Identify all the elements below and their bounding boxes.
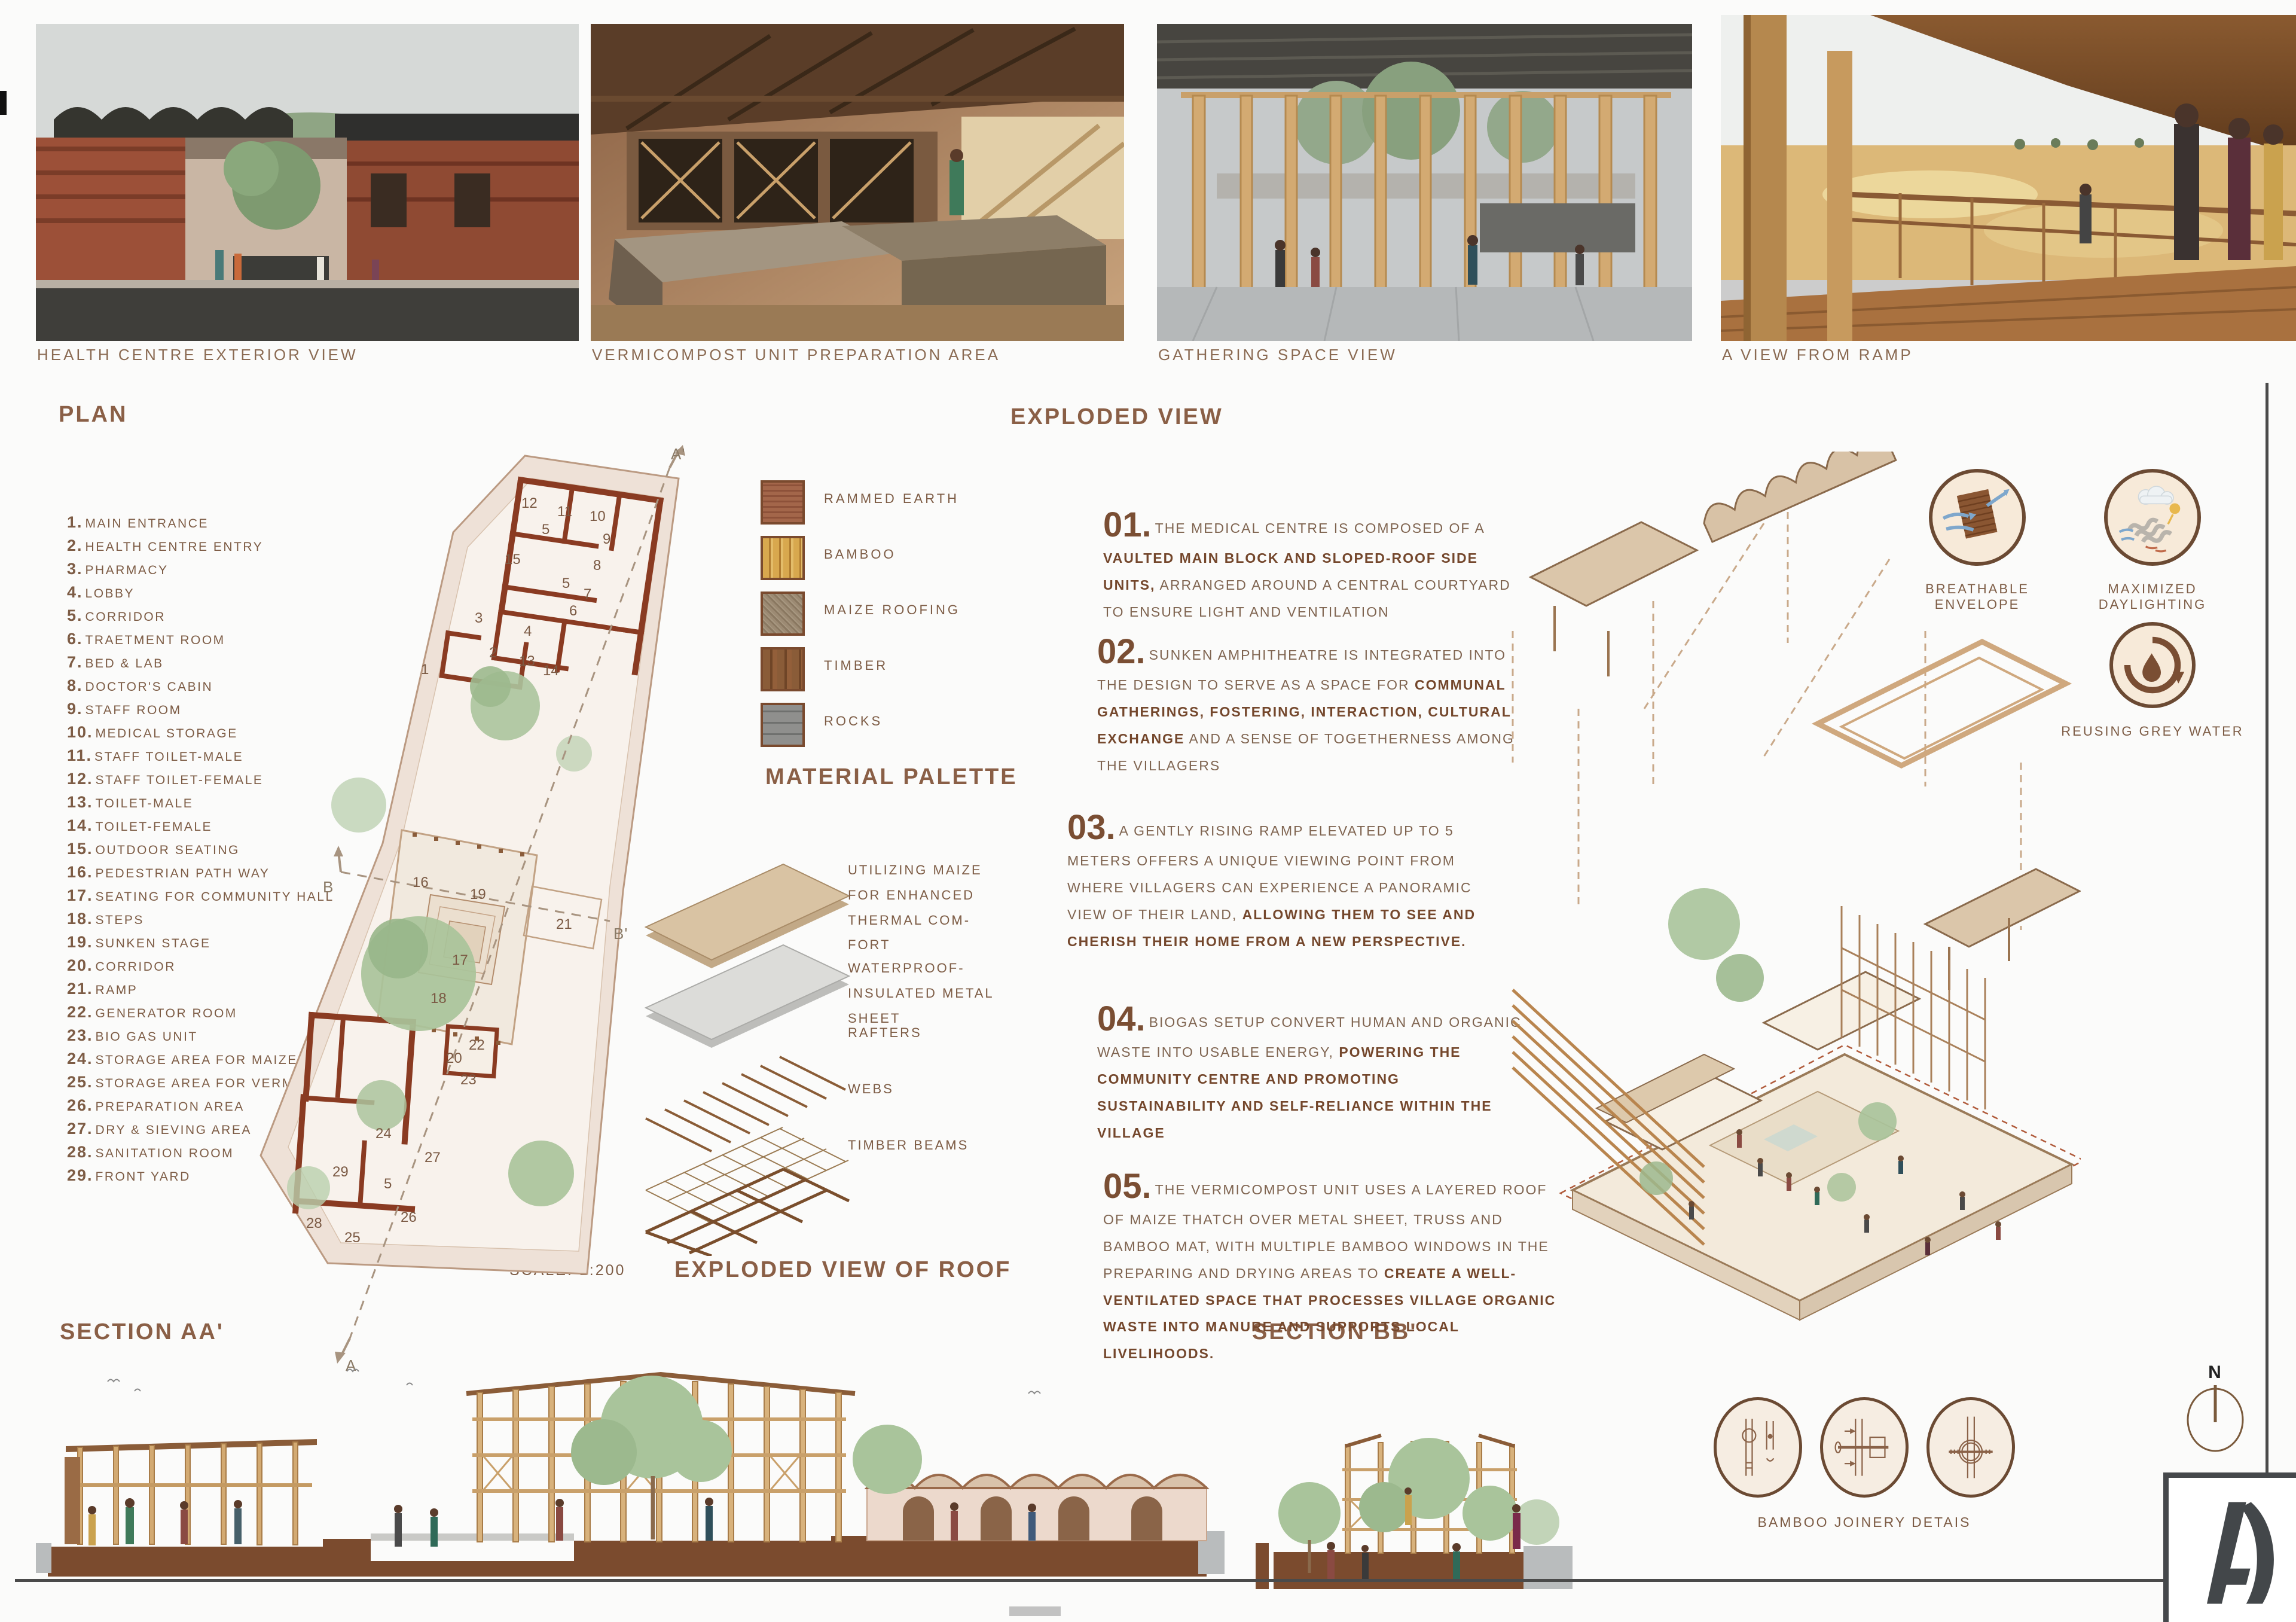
legend-label: STAFF TOILET-MALE [94, 750, 243, 764]
note-text: BIOGAS SETUP CONVERT HUMAN AND ORGANIC W… [1097, 1014, 1522, 1141]
feature-reusing-grey-water: REUSING GREY WATER [2057, 622, 2248, 739]
photo-health-centre-exterior [36, 24, 579, 341]
legend-number: 15. [67, 840, 93, 858]
room-number: 5 [384, 1176, 392, 1193]
material-item: BAMBOO [761, 536, 960, 578]
legend-number: 13. [67, 793, 93, 812]
room-number: 11 [557, 504, 572, 520]
legend-label: LOBBY [86, 587, 135, 601]
room-number: 6 [569, 603, 577, 620]
note-number: 03. [1067, 808, 1116, 847]
plan-title: PLAN [59, 402, 127, 428]
legend-number: 5. [67, 606, 83, 625]
legend-number: 28. [67, 1143, 93, 1161]
material-item: ROCKS [761, 703, 960, 745]
note-text: SUNKEN AMPHITHEATRE IS INTEGRATED INTO T… [1097, 647, 1515, 773]
room-number: 21 [556, 916, 572, 933]
legend-number: 19. [67, 933, 93, 952]
legend-label: PREPARATION AREA [96, 1100, 245, 1114]
legend-label: HEALTH CENTRE ENTRY [86, 540, 264, 554]
legend-label: PEDESTRIAN PATH WAY [96, 867, 270, 881]
legend-number: 21. [67, 980, 93, 998]
joinery-detail-1-icon [1714, 1397, 1802, 1498]
vermicompost-unit-render [591, 24, 1124, 341]
legend-number: 1. [67, 513, 83, 532]
legend-label: CORRIDOR [96, 960, 176, 974]
legend-number: 4. [67, 583, 83, 602]
legend-number: 6. [67, 630, 83, 648]
legend-number: 25. [67, 1073, 93, 1092]
material-item: TIMBER [761, 647, 960, 689]
design-note: 01.THE MEDICAL CENTRE IS COMPOSED OF A V… [1103, 505, 1522, 626]
room-number: 1 [421, 661, 429, 678]
room-number: 9 [603, 531, 610, 548]
roof-exploded-labels: UTILIZING MAIZE FOR ENHANCED THERMAL COM… [837, 843, 1052, 1226]
room-number: 17 [452, 952, 468, 969]
room-number: 7 [584, 586, 591, 603]
material-swatch [761, 703, 805, 747]
legend-label: MAIN ENTRANCE [86, 517, 209, 531]
section-aa-svg [36, 1356, 1232, 1596]
sheet-bottom-rule [15, 1579, 2163, 1582]
note-number: 05. [1103, 1167, 1152, 1206]
material-label: TIMBER [824, 658, 888, 673]
legend-number: 27. [67, 1120, 93, 1138]
material-label: MAIZE ROOFING [824, 602, 960, 618]
legend-number: 10. [67, 723, 93, 742]
legend-number: 22. [67, 1003, 93, 1022]
room-number: 4 [524, 623, 532, 640]
legend-label: OUTDOOR SEATING [96, 843, 240, 858]
legend-number: 18. [67, 910, 93, 928]
feature-label-grey-water: REUSING GREY WATER [2057, 724, 2248, 739]
material-swatch [761, 592, 805, 636]
room-number: 3 [475, 610, 483, 627]
room-number: 5 [562, 575, 570, 592]
material-label: ROCKS [824, 714, 883, 729]
studio-logo-a-glyph [2187, 1489, 2288, 1617]
material-item: RAMMED EARTH [761, 480, 960, 522]
note-number: 01. [1103, 505, 1152, 544]
room-number: 24 [375, 1126, 392, 1142]
material-item: MAIZE ROOFING [761, 592, 960, 633]
note-number: 04. [1097, 999, 1146, 1038]
roof-exploded-diagram [610, 837, 861, 1259]
section-bb-svg [1256, 1423, 1602, 1603]
legend-number: 3. [67, 560, 83, 578]
roof-layer-label: WEBS [848, 1077, 1027, 1102]
room-number: 26 [401, 1209, 417, 1226]
legend-label: FRONT YARD [96, 1170, 191, 1184]
photo-view-from-ramp [1721, 15, 2296, 341]
legend-number: 11. [67, 746, 92, 765]
exploded-roof-title: EXPLODED VIEW OF ROOF [674, 1257, 1011, 1283]
room-number: 29 [332, 1164, 349, 1181]
caption-view-from-ramp: A VIEW FROM RAMP [1722, 346, 1913, 364]
material-palette: RAMMED EARTH BAMBOO MAIZE ROOFING TIMBER… [761, 480, 960, 758]
maximized-daylighting-icon [2104, 469, 2201, 566]
north-label: N [2179, 1362, 2251, 1383]
room-number: 23 [460, 1072, 477, 1089]
legend-label: GENERATOR ROOM [96, 1007, 237, 1021]
legend-label: SANITATION ROOM [96, 1147, 234, 1161]
feature-label-breathable: BREATHABLE ENVELOPE [1882, 581, 2073, 612]
caption-gathering-space: GATHERING SPACE VIEW [1158, 346, 1397, 364]
compass-icon [2182, 1383, 2248, 1455]
section-aa-title: SECTION AA' [60, 1319, 224, 1345]
room-number: 27 [425, 1150, 441, 1166]
note-text: THE VERMICOMPOST UNIT USES A LAYERED ROO… [1103, 1182, 1556, 1361]
health-centre-exterior-render [36, 24, 579, 341]
photo-gathering-space [1157, 24, 1692, 341]
legend-number: 23. [67, 1026, 93, 1045]
legend-label: DOCTOR'S CABIN [86, 680, 213, 694]
legend-number: 14. [67, 816, 93, 835]
edge-tick [0, 91, 7, 115]
design-note: 04.BIOGAS SETUP CONVERT HUMAN AND ORGANI… [1097, 999, 1528, 1146]
section-marker-b-left: B [323, 878, 334, 897]
breathable-envelope-icon [1929, 469, 2026, 566]
legend-label: MEDICAL STORAGE [96, 727, 238, 741]
feature-breathable-envelope: BREATHABLE ENVELOPE [1882, 469, 2073, 612]
roof-layer-label: TIMBER BEAMS [848, 1133, 1039, 1158]
legend-number: 2. [67, 536, 83, 555]
feature-maximized-daylighting: MAXIMIZED DAYLIGHTING [2057, 469, 2248, 612]
design-note: 02.SUNKEN AMPHITHEATRE IS INTEGRATED INT… [1097, 632, 1516, 779]
joinery-detail-2-icon [1820, 1397, 1909, 1498]
north-compass: N [2179, 1362, 2251, 1458]
legend-label: TRAETMENT ROOM [86, 633, 225, 648]
legend-number: 9. [67, 700, 83, 718]
note-text: THE MEDICAL CENTRE IS COMPOSED OF A VAUL… [1103, 520, 1511, 620]
legend-label: STAFF TOILET-FEMALE [96, 773, 264, 788]
photo-vermicompost-unit [591, 24, 1124, 341]
view-from-ramp-render [1721, 15, 2296, 341]
material-swatch [761, 480, 805, 525]
legend-number: 16. [67, 863, 93, 882]
legend-label: DRY & SIEVING AREA [96, 1123, 252, 1138]
design-note: 05.THE VERMICOMPOST UNIT USES A LAYERED … [1103, 1166, 1570, 1367]
room-number: 28 [306, 1215, 322, 1232]
legend-label: PHARMACY [86, 563, 169, 578]
legend-number: 7. [67, 653, 83, 672]
gathering-space-render [1157, 24, 1692, 341]
room-number: 16 [413, 874, 429, 891]
material-palette-title: MATERIAL PALETTE [765, 764, 1018, 790]
note-number: 02. [1097, 632, 1146, 671]
room-number: 15 [505, 551, 521, 568]
studio-logo [2163, 1472, 2296, 1622]
roof-layer-label: RAFTERS [848, 1020, 1027, 1045]
legend-label: STEPS [96, 913, 144, 928]
section-marker-a-top: A' [671, 445, 685, 464]
legend-label: BED & LAB [86, 657, 164, 671]
legend-label: RAMP [96, 983, 138, 998]
legend-label: STAFF ROOM [86, 703, 182, 718]
room-number: 22 [469, 1037, 485, 1054]
legend-number: 20. [67, 956, 93, 975]
exploded-view-title: EXPLODED VIEW [1010, 404, 1223, 430]
legend-label: TOILET-MALE [96, 797, 194, 811]
room-number: 12 [521, 495, 538, 512]
roof-layer-label: WATERPROOF-INSULATED METAL SHEET [848, 956, 1045, 1030]
material-swatch [761, 536, 805, 580]
legend-label: SUNKEN STAGE [96, 937, 211, 951]
room-number: 10 [590, 508, 606, 525]
presentation-sheet: SHEET NO : 02 archi_QJ0ToAzvpbEpx7 [0, 0, 2296, 1622]
room-number: 20 [446, 1050, 462, 1067]
material-label: BAMBOO [824, 547, 896, 562]
legend-number: 29. [67, 1166, 93, 1185]
legend-number: 17. [67, 886, 93, 905]
legend-label: CORRIDOR [86, 610, 166, 624]
room-number: 14 [543, 663, 559, 679]
roof-exploded-svg [610, 837, 861, 1256]
legend-label: TOILET-FEMALE [96, 820, 213, 834]
room-number: 8 [593, 557, 601, 574]
joinery-detail-3-icon [1926, 1397, 2015, 1498]
caption-health-centre: HEALTH CENTRE EXTERIOR VIEW [37, 346, 358, 364]
roof-layer-label: UTILIZING MAIZE FOR ENHANCED THERMAL COM… [848, 858, 997, 958]
design-note: 03.A GENTLY RISING RAMP ELEVATED UP TO 5… [1067, 807, 1510, 955]
material-swatch [761, 647, 805, 691]
room-number: 25 [344, 1230, 361, 1246]
legend-number: 24. [67, 1050, 93, 1068]
joinery-details-label: BAMBOO JOINERY DETAIS [1745, 1514, 1984, 1530]
sheet-right-rule [2266, 383, 2268, 1472]
material-label: RAMMED EARTH [824, 491, 959, 507]
reusing-grey-water-icon [2109, 622, 2196, 708]
caption-vermicompost: VERMICOMPOST UNIT PREPARATION AREA [592, 346, 1000, 364]
legend-number: 12. [67, 770, 93, 788]
feature-label-daylighting: MAXIMIZED DAYLIGHTING [2057, 581, 2248, 612]
footer-mark [1009, 1606, 1061, 1616]
room-number: 5 [542, 522, 549, 538]
room-number: 18 [430, 990, 447, 1007]
room-number: 19 [470, 886, 486, 903]
note-text: A GENTLY RISING RAMP ELEVATED UP TO 5 ME… [1067, 823, 1476, 949]
legend-number: 26. [67, 1096, 93, 1115]
legend-label: BIO GAS UNIT [96, 1030, 198, 1044]
section-aa-drawing [36, 1356, 1232, 1599]
room-number: 13 [519, 653, 535, 670]
room-number: 2 [489, 645, 497, 661]
legend-number: 8. [67, 676, 83, 695]
